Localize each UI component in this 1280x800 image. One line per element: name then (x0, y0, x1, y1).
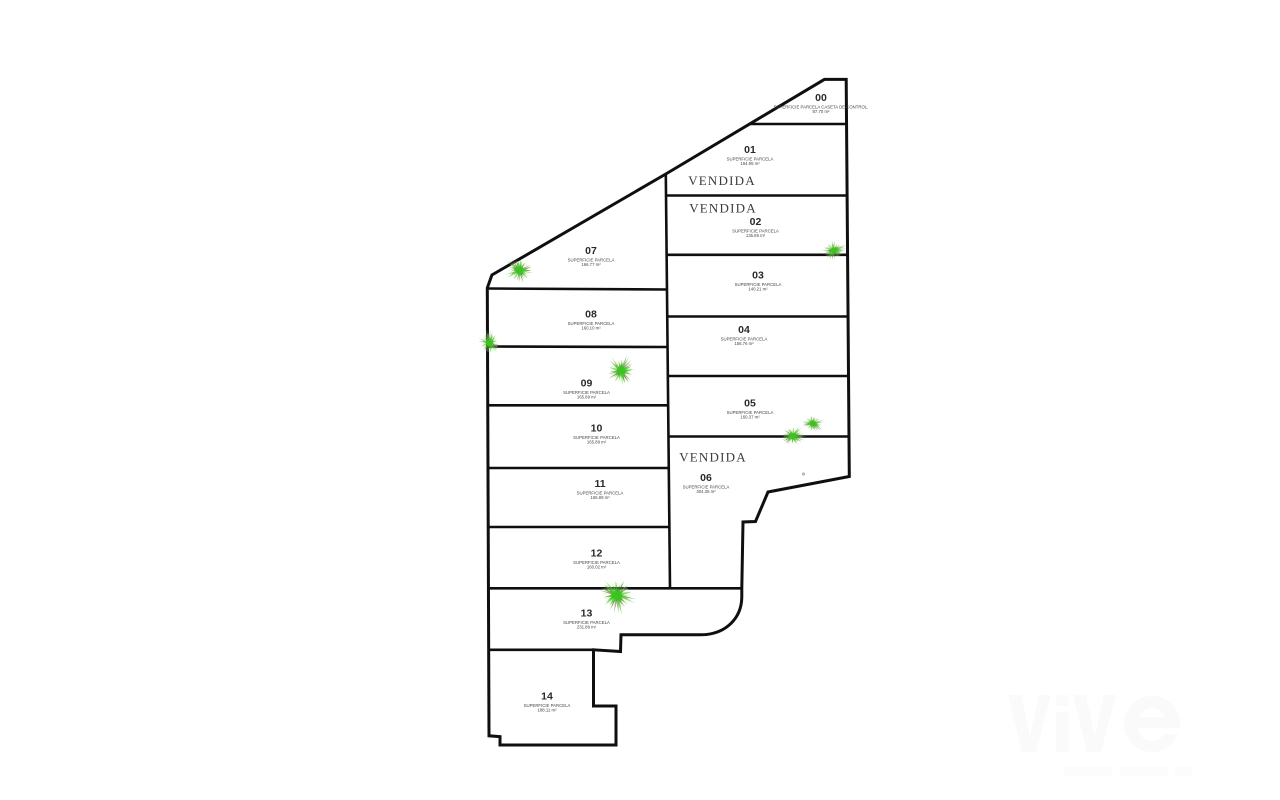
svg-text:12: 12 (591, 548, 603, 560)
svg-text:231.89 m²: 231.89 m² (577, 625, 597, 630)
svg-text:188.11 m²: 188.11 m² (537, 708, 557, 713)
svg-text:156.76 m²: 156.76 m² (734, 341, 754, 346)
svg-text:160.37 m²: 160.37 m² (740, 415, 760, 420)
svg-text:02: 02 (750, 216, 762, 228)
svg-text:160.02 m²: 160.02 m² (587, 565, 607, 570)
svg-text:160.10 m²: 160.10 m² (581, 326, 601, 331)
svg-text:166.77 m²: 166.77 m² (581, 262, 601, 267)
svg-text:04: 04 (738, 324, 750, 336)
svg-text:10: 10 (591, 423, 603, 435)
svg-text:87.70 m²: 87.70 m² (813, 109, 831, 114)
svg-text:VENDIDA: VENDIDA (679, 450, 747, 465)
svg-text:01: 01 (744, 144, 756, 156)
svg-text:06: 06 (700, 472, 712, 484)
svg-text:14: 14 (541, 691, 553, 703)
svg-text:00: 00 (815, 92, 827, 104)
svg-text:07: 07 (585, 245, 597, 257)
svg-text:165.89 m²: 165.89 m² (590, 495, 610, 500)
svg-text:11: 11 (594, 478, 605, 490)
svg-text:165.89 m²: 165.89 m² (577, 395, 597, 400)
svg-text:03: 03 (752, 270, 764, 282)
svg-text:304.35 m²: 304.35 m² (696, 489, 716, 494)
svg-text:140.21 m²: 140.21 m² (748, 287, 768, 292)
svg-text:09: 09 (581, 378, 593, 390)
svg-text:VENDIDA: VENDIDA (688, 173, 756, 188)
svg-text:08: 08 (585, 309, 597, 321)
svg-text:135.85 m²: 135.85 m² (746, 233, 766, 238)
svg-text:05: 05 (744, 398, 756, 410)
svg-text:165.89 m²: 165.89 m² (587, 440, 607, 445)
svg-text:13: 13 (581, 608, 593, 620)
svg-text:194.95 m²: 194.95 m² (740, 161, 760, 166)
svg-text:VENDIDA: VENDIDA (689, 201, 757, 216)
